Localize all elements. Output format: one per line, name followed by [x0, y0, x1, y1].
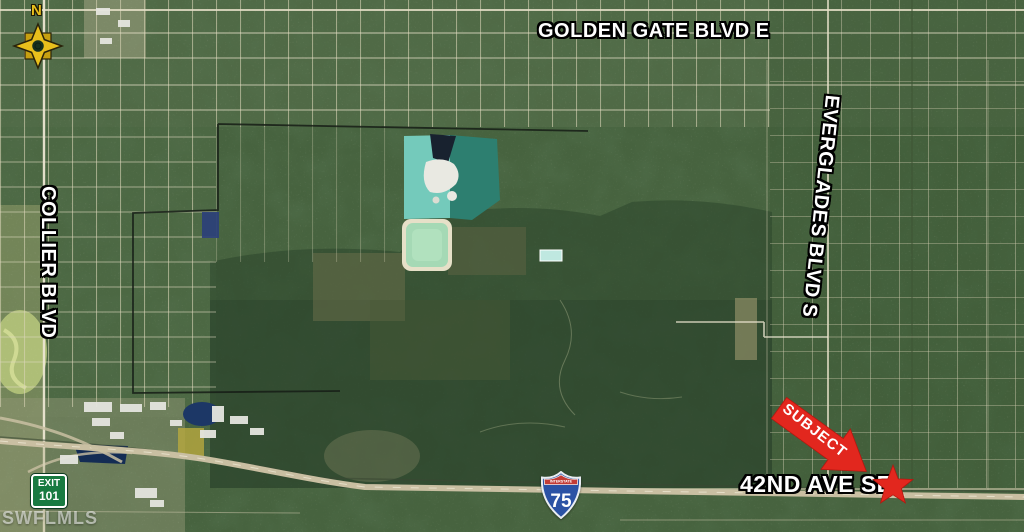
exit-sign-word: EXIT: [33, 478, 65, 490]
road-label-golden-gate-blvd: GOLDEN GATE BLVD E: [538, 21, 770, 41]
aerial-map-screenshot: N GOLDEN GATE BLVD E COLLIER BLVD EVERGL…: [0, 0, 1024, 532]
subject-star-icon: [865, 458, 921, 514]
interstate-75-shield-icon: INTERSTATE 75: [541, 471, 581, 519]
shield-header-text: INTERSTATE: [550, 480, 573, 484]
compass-north-label: N: [31, 3, 42, 18]
exit-sign-number: 101: [33, 490, 65, 504]
shield-route-number: 75: [550, 491, 572, 512]
exit-101-sign: EXIT 101: [31, 474, 67, 508]
road-label-collier-blvd: COLLIER BLVD: [38, 186, 58, 338]
mls-watermark: SWFLMLS: [2, 508, 98, 529]
